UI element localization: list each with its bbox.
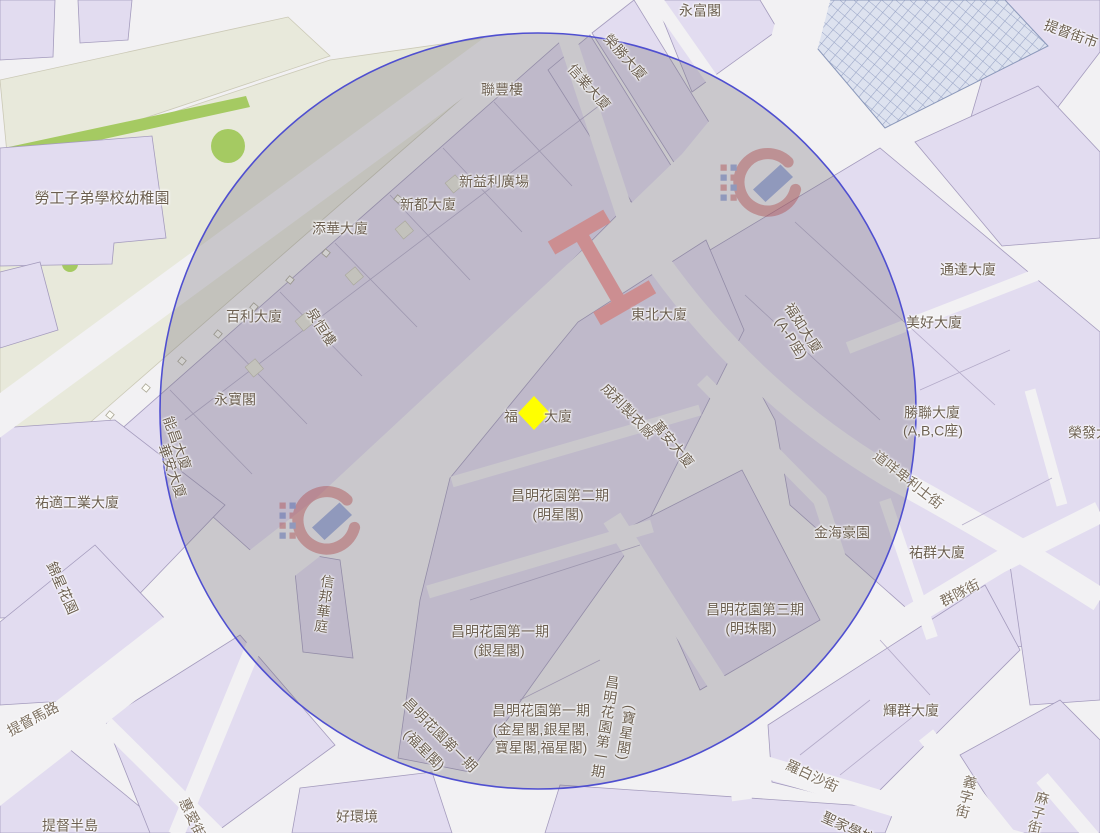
map-tiles [0,0,1100,833]
map-viewport[interactable]: 勞工子弟學校幼稚園永富閣聯豐樓新益利廣場新都大廈添華大廈百利大廈泉恒樓永寶閣能昌… [0,0,1100,833]
